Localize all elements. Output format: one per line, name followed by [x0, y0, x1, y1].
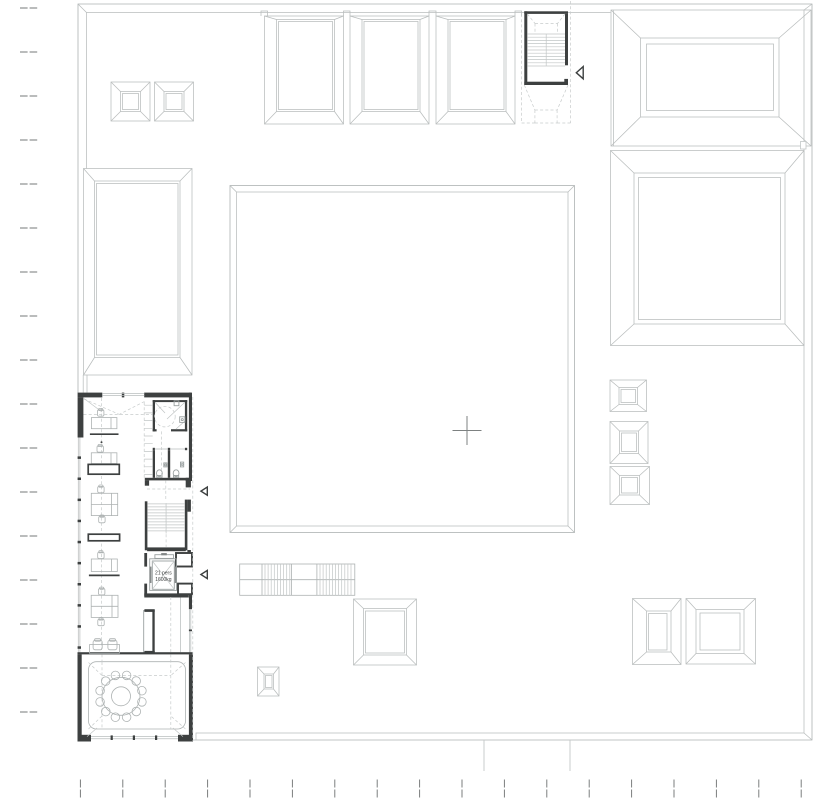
- svg-text:21 pers: 21 pers: [155, 571, 172, 577]
- svg-text:1600kg: 1600kg: [155, 577, 172, 583]
